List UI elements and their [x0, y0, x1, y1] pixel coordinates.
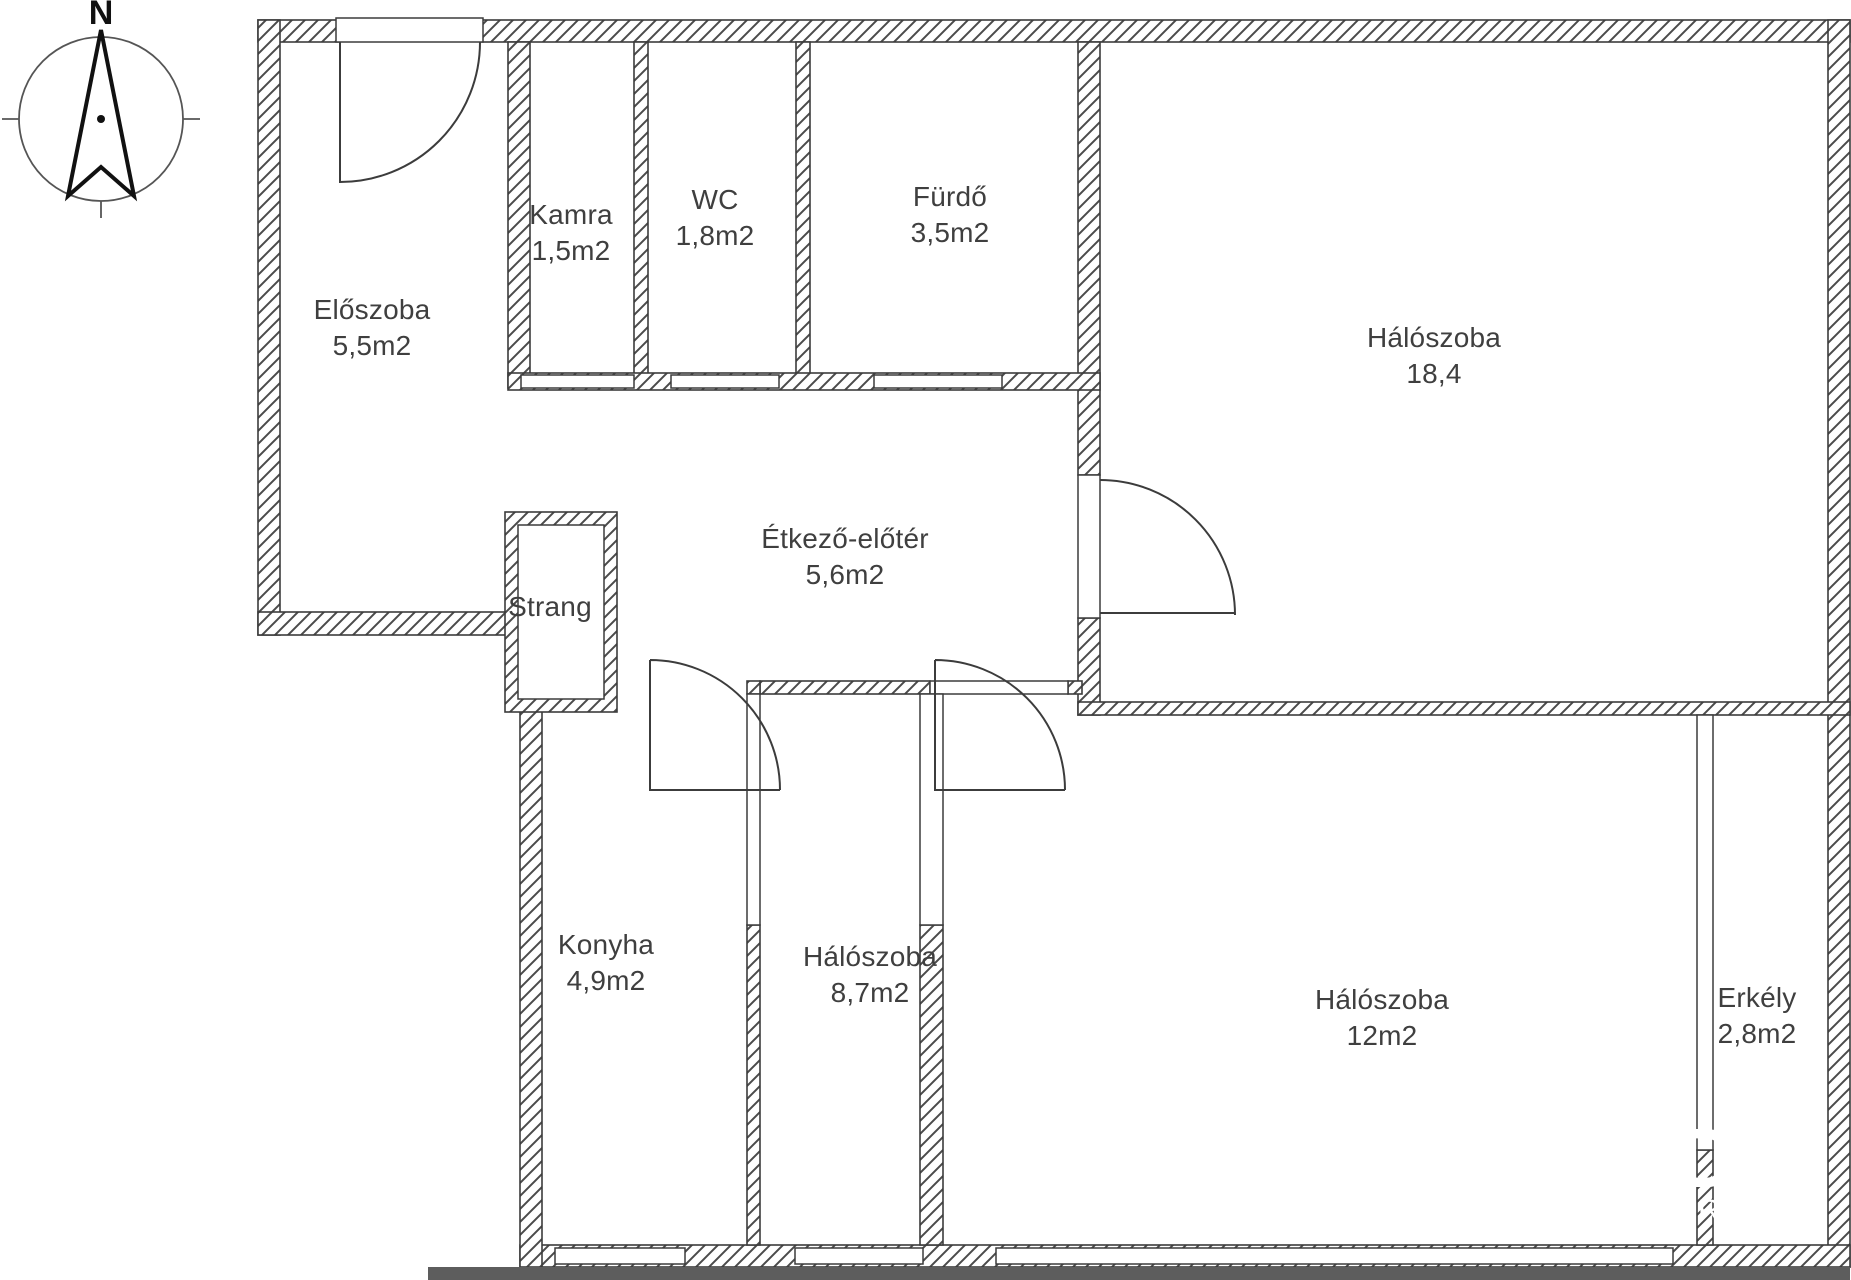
room-area: 12m2: [1315, 1018, 1449, 1054]
wall-eloszoba-kamra: [508, 42, 530, 388]
window-balcony-partition: [1697, 715, 1713, 1150]
compass-center-dot: [97, 115, 105, 123]
wall-central-upper: [1078, 42, 1100, 475]
door-opening-bedroom87: [747, 694, 760, 925]
room-label-konyha: Konyha 4,9m2: [558, 927, 654, 999]
room-label-strang: Strang: [508, 589, 592, 625]
room-name: WC: [676, 182, 755, 218]
room-label-eloszoba: Előszoba 5,5m2: [314, 292, 431, 364]
room-name: Strang: [508, 589, 592, 625]
wall-konyha-bedroom87: [747, 925, 760, 1245]
room-name: Erkély: [1718, 980, 1797, 1016]
door-arc-bedroom184: [1100, 480, 1235, 615]
room-name: Étkező-előtér: [761, 521, 929, 557]
door-opening-furdo: [874, 375, 1002, 388]
wall-etkezo-bottom-left: [760, 681, 930, 694]
wall-konyha-stub: [747, 681, 760, 694]
room-name: Hálószoba: [1367, 320, 1501, 356]
watermark-letter: D: [1678, 1116, 1739, 1200]
room-area: 1,5m2: [529, 233, 612, 269]
door-arc-entrance: [340, 42, 480, 182]
room-label-bedroom12: Hálószoba 12m2: [1315, 982, 1449, 1054]
room-label-wc: WC 1,8m2: [676, 182, 755, 254]
wall-top-main: [482, 20, 1850, 42]
room-area: 1,8m2: [676, 218, 755, 254]
entrance-door-threshold: [336, 18, 483, 42]
room-label-bedroom184: Hálószoba 18,4: [1367, 320, 1501, 392]
room-area: 4,9m2: [558, 963, 654, 999]
room-label-kamra: Kamra 1,5m2: [529, 197, 612, 269]
window-bedroom87: [795, 1248, 923, 1264]
window-konyha: [555, 1248, 685, 1264]
room-label-bedroom87: Hálószoba 8,7m2: [803, 939, 937, 1011]
door-opening-bedroom184: [1078, 475, 1100, 618]
room-area: 3,5m2: [911, 215, 990, 251]
room-area: 2,8m2: [1718, 1016, 1797, 1052]
room-label-etkezo: Étkező-előtér 5,6m2: [761, 521, 929, 593]
room-area: 8,7m2: [803, 975, 937, 1011]
door-arc-bedroom12: [935, 660, 1065, 790]
watermark-letter-small: R: [1698, 1196, 1720, 1226]
door-opening-kamra: [521, 375, 634, 388]
compass-north-label: N: [89, 0, 114, 30]
compass-needle: [68, 30, 134, 196]
wall-kamra-wc: [634, 42, 648, 388]
wall-eloszoba-bottom: [258, 612, 517, 635]
room-name: Előszoba: [314, 292, 431, 328]
compass-rose: [2, 30, 200, 218]
wall-right-exterior: [1828, 20, 1850, 1267]
room-label-furdo: Fürdő 3,5m2: [911, 179, 990, 251]
bottom-cut-band: [428, 1267, 1850, 1280]
wall-wc-furdo: [796, 42, 810, 388]
wall-left-exterior: [258, 20, 280, 635]
wall-lower-left-exterior: [520, 700, 542, 1267]
room-area: 18,4: [1367, 356, 1501, 392]
wall-central-lower: [1078, 618, 1100, 715]
wall-etkezo-bottom-right: [1068, 681, 1082, 694]
wall-bedroom184-bedroom12: [1078, 702, 1850, 715]
room-name: Konyha: [558, 927, 654, 963]
room-name: Kamra: [529, 197, 612, 233]
wall-opening-bedroom87-12: [920, 694, 943, 925]
room-name: Hálószoba: [803, 939, 937, 975]
window-bedroom12: [996, 1248, 1673, 1264]
room-name: Hálószoba: [1315, 982, 1449, 1018]
floor-plan: N Előszoba 5,5m2 Kamra 1,5m2 WC 1,8m2 Fü…: [0, 0, 1851, 1280]
door-opening-bedroom12: [930, 681, 1068, 694]
door-opening-wc: [671, 375, 779, 388]
room-area: 5,5m2: [314, 328, 431, 364]
room-area: 5,6m2: [761, 557, 929, 593]
room-name: Fürdő: [911, 179, 990, 215]
room-label-erkely: Erkély 2,8m2: [1718, 980, 1797, 1052]
